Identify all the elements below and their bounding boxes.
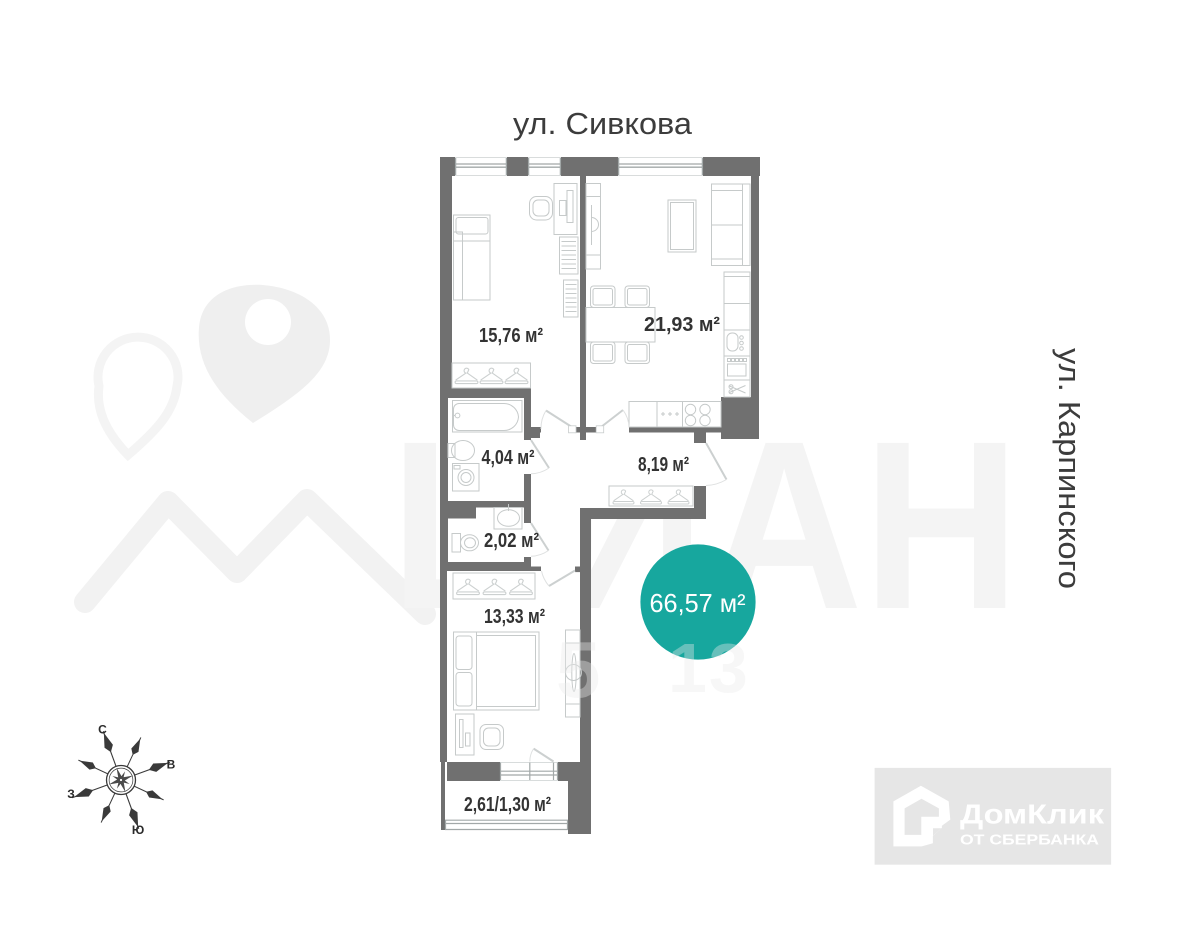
- svg-text:13: 13: [668, 629, 750, 707]
- svg-text:С: С: [98, 723, 107, 737]
- svg-text:21,93 м²: 21,93 м²: [644, 314, 720, 336]
- svg-text:2,61/1,30 м²: 2,61/1,30 м²: [464, 794, 551, 816]
- svg-text:ул. Карпинского: ул. Карпинского: [1052, 348, 1087, 589]
- svg-text:4,04 м²: 4,04 м²: [482, 447, 535, 469]
- svg-text:5: 5: [556, 625, 601, 714]
- svg-text:Ю: Ю: [132, 823, 144, 837]
- svg-text:2,02 м²: 2,02 м²: [484, 530, 539, 552]
- svg-text:66,57 м²: 66,57 м²: [650, 588, 746, 618]
- svg-text:ОТ СБЕРБАНКА: ОТ СБЕРБАНКА: [960, 833, 1100, 849]
- svg-text:ул. Сивкова: ул. Сивкова: [513, 106, 693, 141]
- svg-text:13,33 м²: 13,33 м²: [484, 606, 545, 628]
- svg-text:В: В: [167, 758, 176, 772]
- svg-text:З: З: [67, 787, 75, 801]
- svg-text:ДомКлик: ДомКлик: [960, 799, 1105, 830]
- svg-text:15,76 м²: 15,76 м²: [479, 325, 543, 347]
- svg-text:8,19 м²: 8,19 м²: [638, 454, 689, 476]
